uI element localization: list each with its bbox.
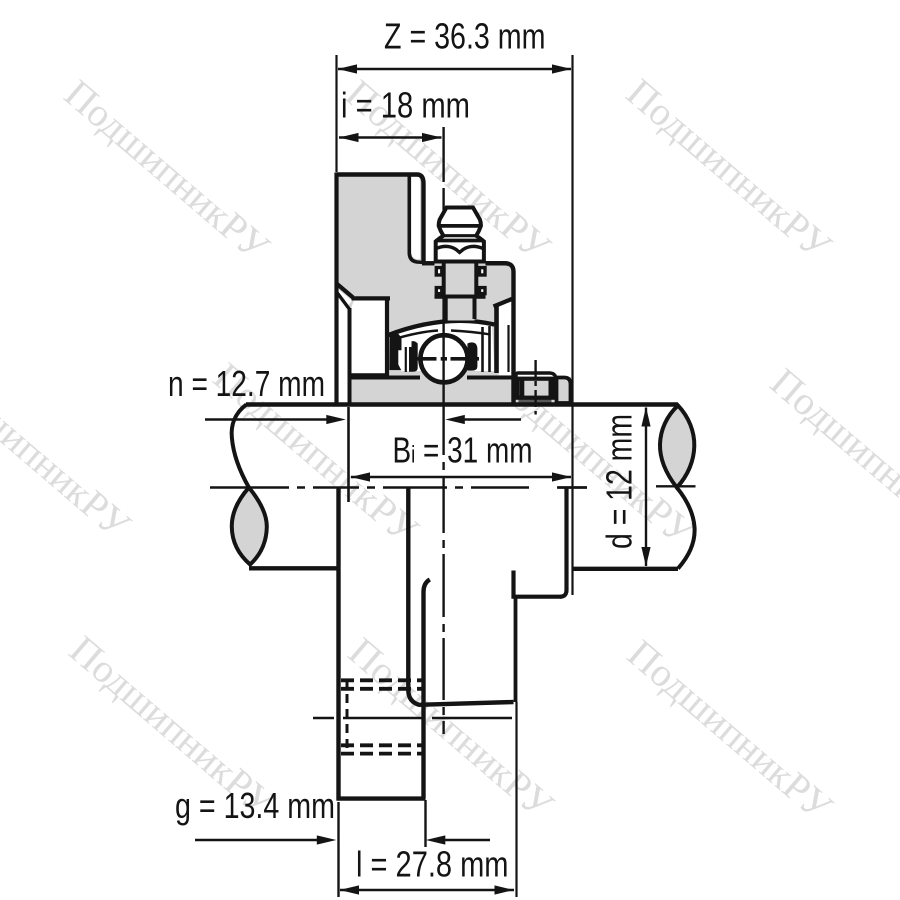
- svg-text:g = 13.4 mm: g = 13.4 mm: [175, 785, 335, 826]
- svg-text:Z = 36.3 mm: Z = 36.3 mm: [384, 16, 546, 57]
- svg-text:n = 12.7 mm: n = 12.7 mm: [168, 363, 325, 404]
- svg-text:d = 12 mm: d = 12 mm: [599, 414, 640, 549]
- svg-text:i = 18 mm: i = 18 mm: [341, 84, 470, 125]
- svg-text:l = 27.8 mm: l = 27.8 mm: [356, 843, 509, 884]
